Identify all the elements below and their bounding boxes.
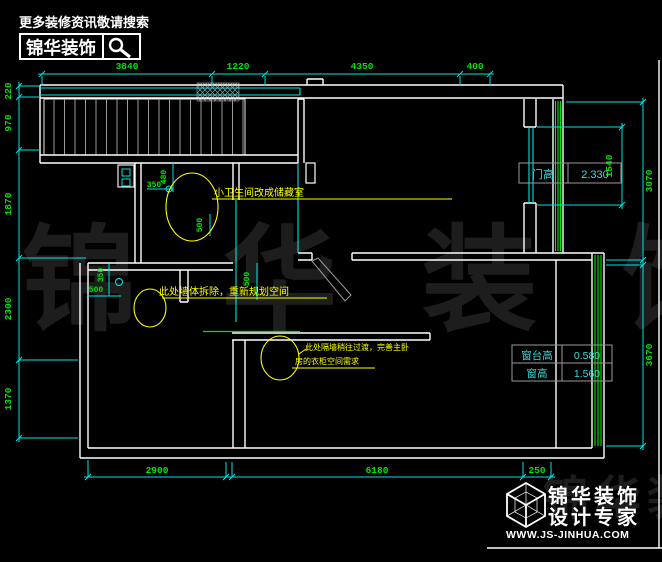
footer-logo: 锦华装饰 设计专家 WWW.JS-JINHUA.COM <box>506 483 640 541</box>
floor-plan-drawing: 锦华装饰 锦华装 3840 1220 4350 400 220 970 1870… <box>0 0 662 562</box>
footer-subtitle: 设计专家 <box>548 505 640 529</box>
dim-bottom-2: 6180 <box>366 465 389 476</box>
dim-bed-width: 500 <box>89 286 104 295</box>
window-sill-label: 窗台高 <box>521 349 553 362</box>
dim-bottom-1: 2900 <box>146 465 169 476</box>
dim-left-3: 1870 <box>3 192 14 215</box>
footer-brand: 锦华装饰 <box>548 484 640 508</box>
dim-bottom-3: 250 <box>528 465 545 476</box>
dim-right-3670: 3670 <box>644 343 655 366</box>
search-tagline: 更多装修资讯敬请搜索 <box>19 15 149 30</box>
window-sill-value: 0.580 <box>574 350 600 362</box>
annotation-partition-text-2: 房的衣柜空间需求 <box>295 356 359 366</box>
dim-right-3070: 3070 <box>644 169 655 192</box>
dim-left-2: 970 <box>3 114 14 131</box>
annotation-partition-text-1: 此处隔墙稍往过渡，完善主卧 <box>305 342 409 352</box>
window-height-label: 窗高 <box>527 367 548 380</box>
dim-left-4: 2300 <box>3 297 14 320</box>
footer-website: WWW.JS-JINHUA.COM <box>506 529 629 541</box>
dim-bed-height: 350 <box>97 268 106 283</box>
window-height-table: 窗台高 0.580 窗高 1.560 <box>512 345 612 381</box>
watermark-text: 锦华装饰 <box>22 217 662 345</box>
dim-left-5: 1370 <box>3 387 14 410</box>
dim-top-3: 4350 <box>351 61 374 72</box>
dim-top-1: 3840 <box>116 61 139 72</box>
cad-floorplan-screenshot: 锦华装饰 锦华装 3840 1220 4350 400 220 970 1870… <box>0 0 662 562</box>
brand-name: 锦华装饰 <box>26 38 96 58</box>
window-height-value: 1.560 <box>574 368 600 380</box>
dim-wall-offset-2: 500 <box>243 272 252 287</box>
dim-left-1: 220 <box>3 82 14 99</box>
dim-top-4: 400 <box>466 61 483 72</box>
dim-wall-offset: 500 <box>196 218 205 233</box>
door-height-label: 门高 <box>532 167 554 181</box>
annotation-demolish-text: 此处墙体拆除，重新规划空间 <box>159 285 289 298</box>
annotation-storage-text: 小卫生间改成储藏室 <box>214 186 304 199</box>
door-height-value: 2.330 <box>581 169 609 181</box>
dim-storage-height: 480 <box>160 170 169 185</box>
dim-top-2: 1220 <box>227 61 250 72</box>
